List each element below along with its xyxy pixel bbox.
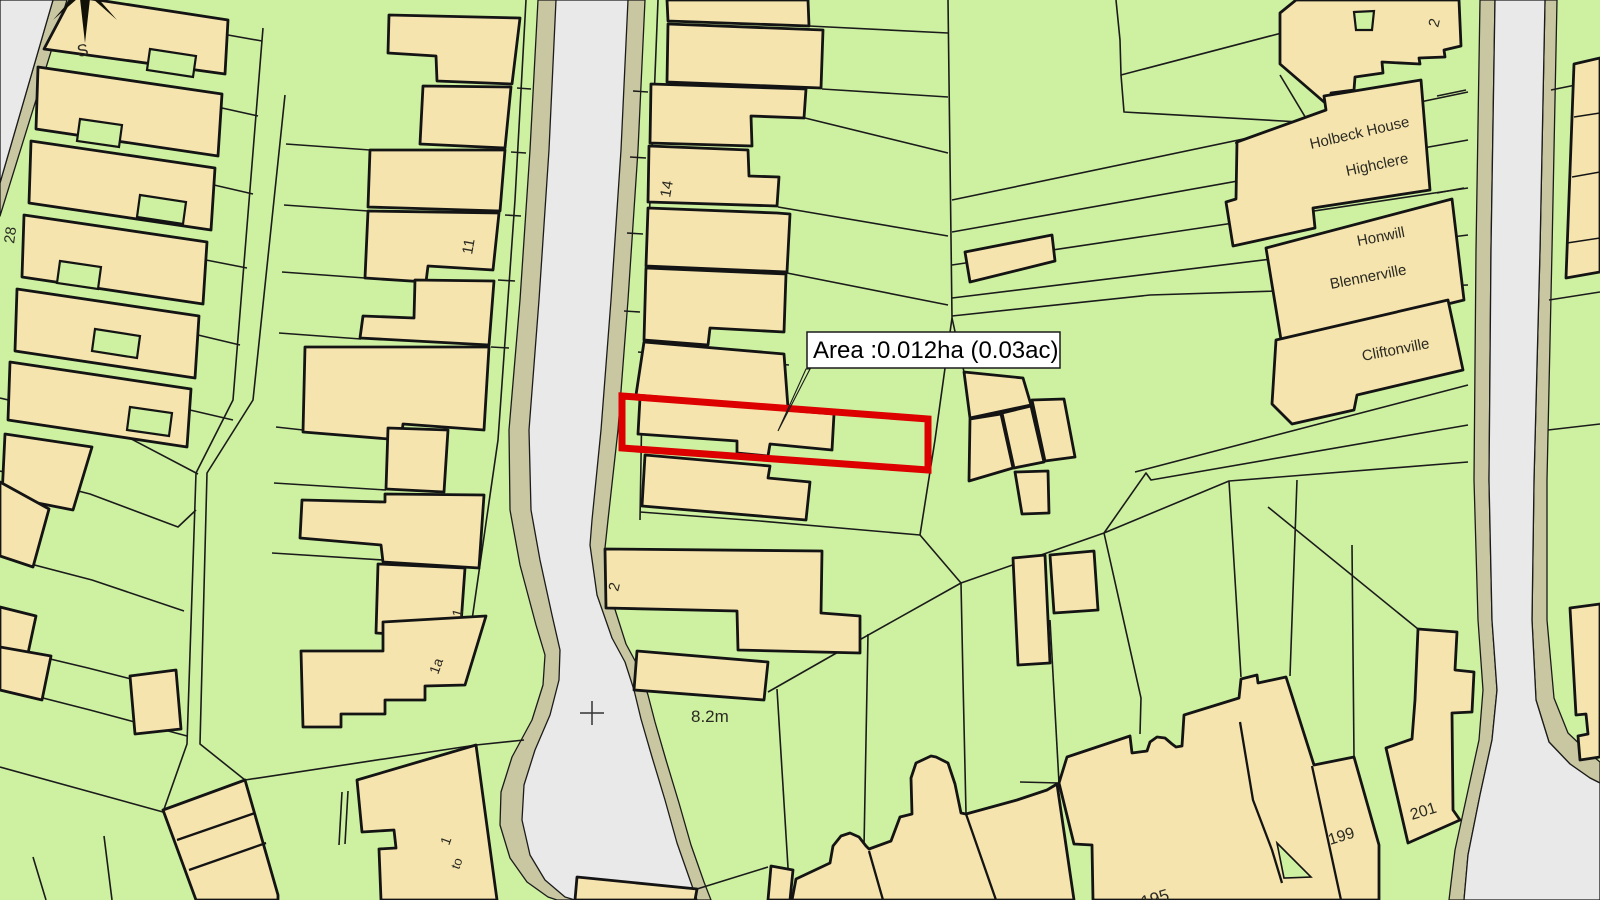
- svg-text:Area :0.012ha (0.03ac): Area :0.012ha (0.03ac): [813, 337, 1059, 364]
- svg-text:28: 28: [1, 226, 20, 245]
- svg-text:11: 11: [459, 237, 478, 255]
- svg-text:8.2m: 8.2m: [691, 707, 729, 726]
- svg-text:14: 14: [657, 179, 677, 198]
